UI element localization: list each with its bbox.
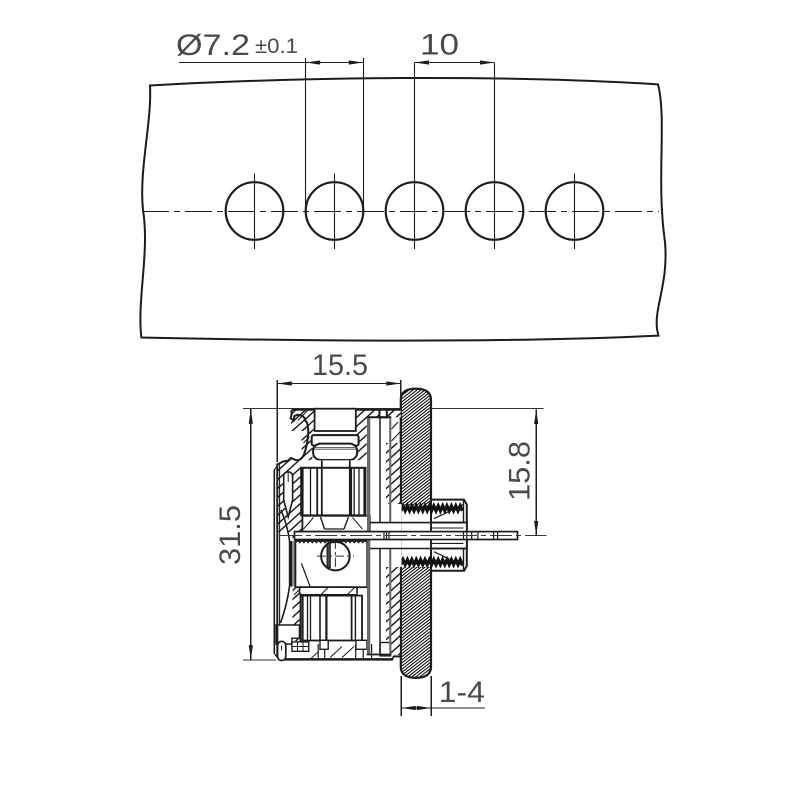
svg-text:10: 10 <box>420 29 459 62</box>
svg-text:15.5: 15.5 <box>312 349 368 382</box>
svg-text:1-4: 1-4 <box>439 676 485 709</box>
svg-text:15.8: 15.8 <box>504 441 537 501</box>
svg-text:31.5: 31.5 <box>214 505 247 565</box>
svg-text:Ø7.2: Ø7.2 <box>176 29 250 62</box>
svg-text:±0.1: ±0.1 <box>255 35 298 58</box>
